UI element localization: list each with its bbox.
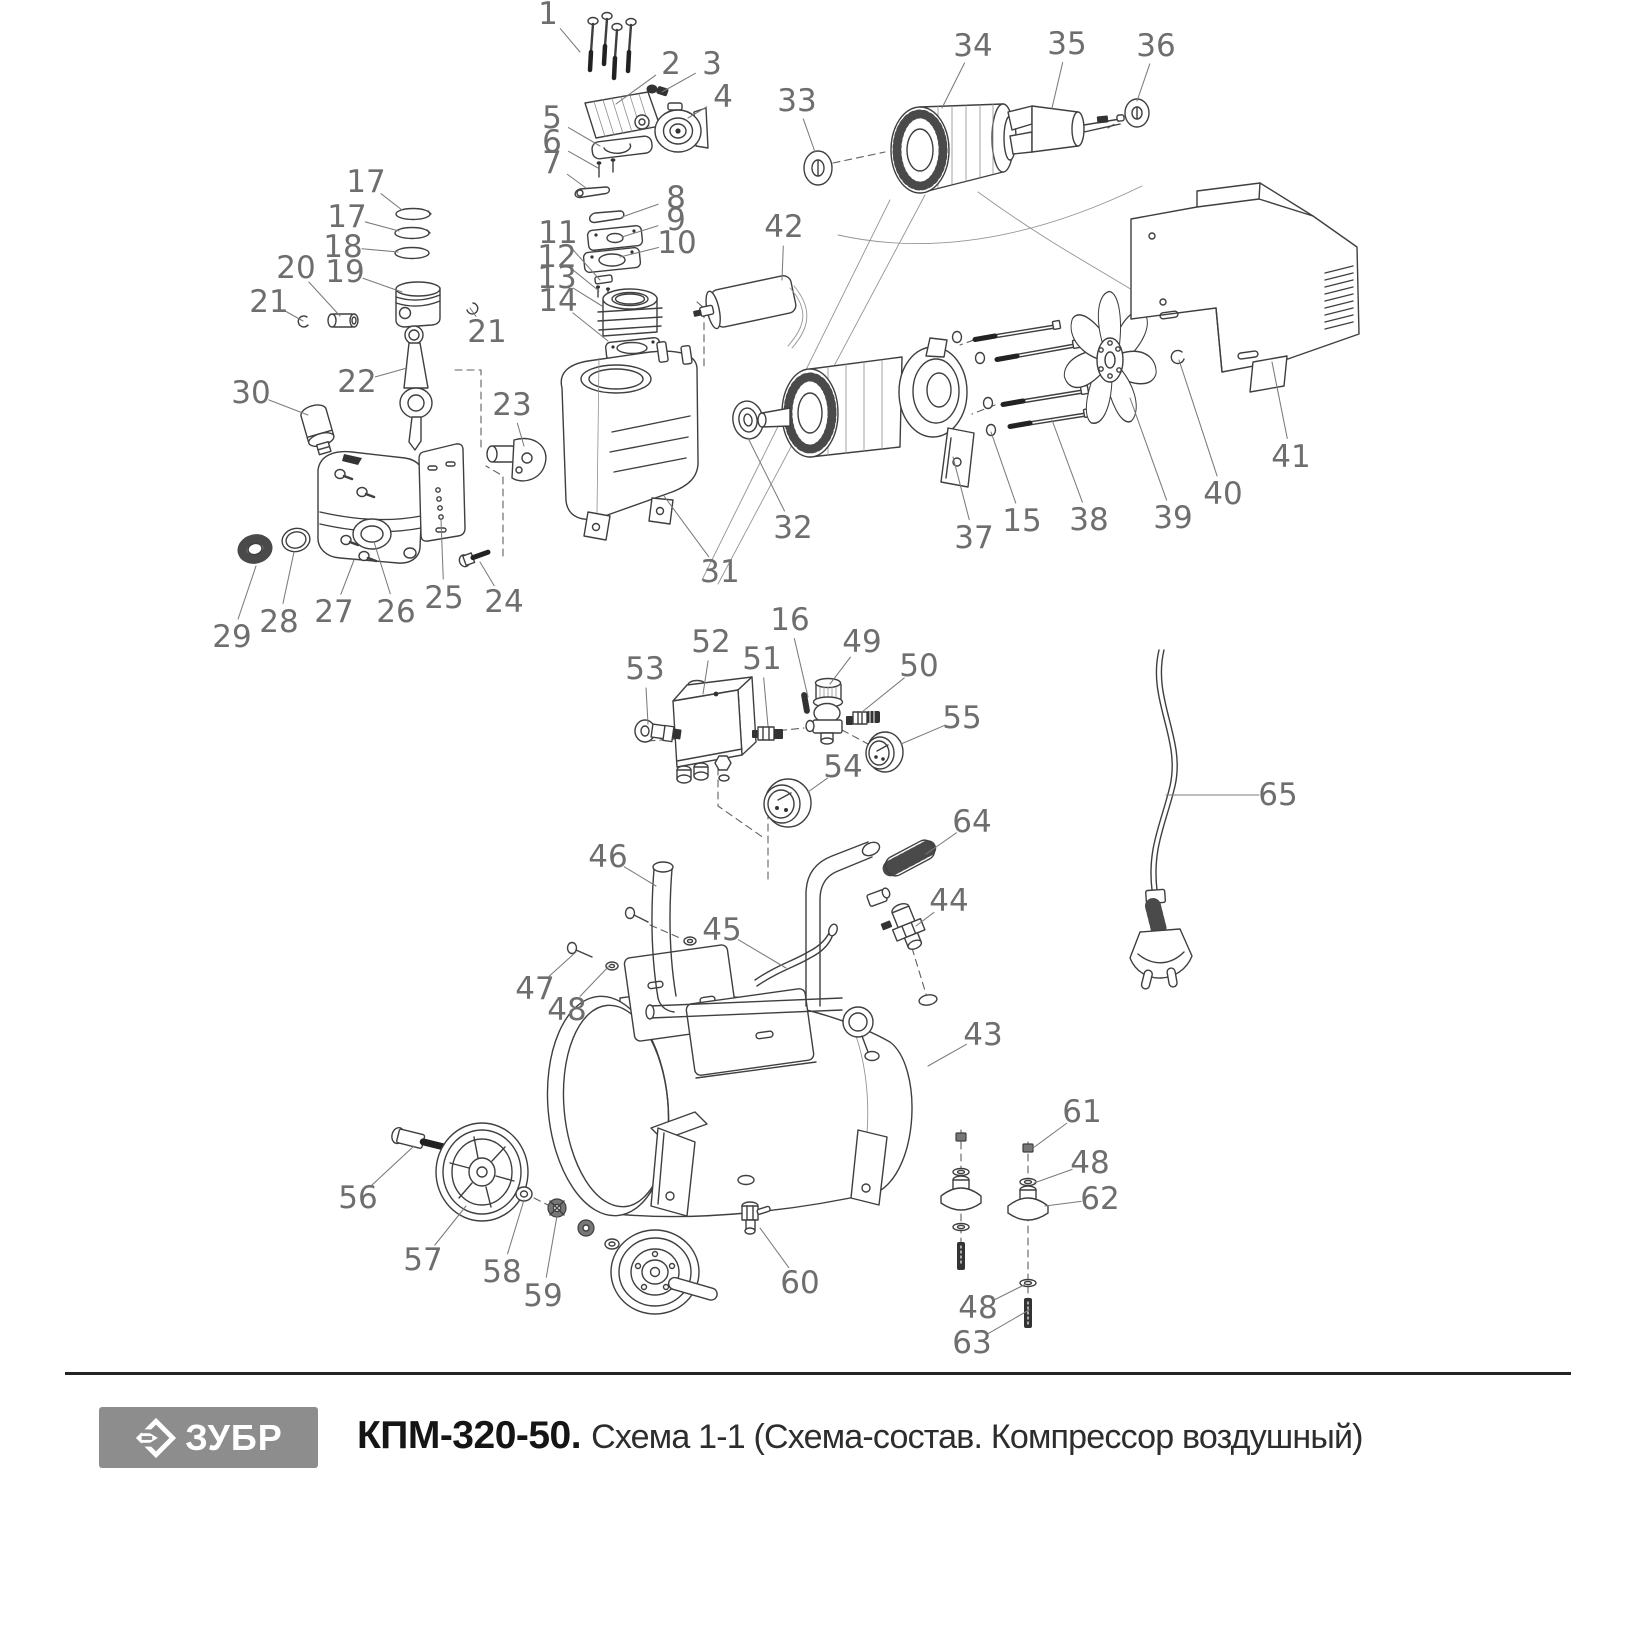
part-number-label: 19 — [325, 254, 364, 290]
part-number-label: 3 — [702, 46, 722, 82]
part-number-label: 23 — [492, 387, 531, 423]
leader-line — [1052, 62, 1063, 108]
part-number-label: 14 — [538, 283, 577, 319]
part-number-label: 63 — [952, 1325, 991, 1361]
part-number-label: 10 — [657, 225, 696, 261]
part-number-label: 45 — [702, 912, 741, 948]
bearing-front — [804, 151, 832, 185]
leader-line — [803, 119, 815, 152]
exploded-diagram: 1234567891011121314151617171819202121222… — [0, 0, 1636, 1636]
part-number-label: 31 — [700, 554, 739, 590]
leader-line — [363, 278, 402, 292]
part-number-label: 38 — [1069, 502, 1108, 538]
leader-line — [362, 249, 398, 252]
leader-line — [738, 940, 786, 968]
title-block: КПМ-320-50. Схема 1-1 (Схема-состав. Ком… — [357, 1414, 1363, 1458]
part-number-label: 27 — [314, 594, 353, 630]
part-number-label: 21 — [249, 284, 288, 320]
part-number-label: 20 — [276, 250, 315, 286]
leader-line — [341, 560, 354, 594]
cover-gasket — [419, 444, 465, 541]
crankcase — [561, 341, 698, 540]
part-number-label: 29 — [212, 619, 251, 655]
part-number-label: 62 — [1080, 1181, 1119, 1217]
piston-rings — [395, 209, 431, 259]
pressure-regulator — [801, 679, 843, 745]
leader-line — [435, 1206, 466, 1245]
leader-line — [942, 63, 965, 108]
leader-line — [646, 688, 648, 724]
valve-plate-stack — [575, 135, 653, 298]
rotor — [891, 104, 1016, 193]
outlet-fitting — [846, 711, 880, 725]
oil-cap — [235, 531, 275, 566]
zubr-logo: ЗУБР — [99, 1407, 318, 1468]
leader-line — [748, 438, 785, 511]
pressure-gauge-large — [764, 779, 811, 827]
part-number-label: 48 — [958, 1290, 997, 1326]
motor-end-bell — [899, 338, 974, 487]
page: 1234567891011121314151617171819202121222… — [0, 0, 1636, 1636]
leader-line — [1045, 1201, 1081, 1206]
pressure-gauge-small — [866, 732, 903, 772]
leader-line — [480, 562, 494, 586]
leader-line — [991, 432, 1016, 503]
part-number-label: 41 — [1271, 439, 1310, 475]
main-handle — [806, 840, 882, 1006]
part-number-label: 61 — [1062, 1094, 1101, 1130]
leader-line — [1052, 420, 1082, 502]
part-number-label: 51 — [742, 641, 781, 677]
part-number-label: 25 — [424, 580, 463, 616]
part-number-label: 37 — [954, 520, 993, 556]
piston — [396, 282, 440, 327]
check-valve — [876, 899, 930, 957]
part-number-label: 65 — [1258, 777, 1297, 813]
leader-line — [622, 204, 658, 217]
leader-line — [862, 678, 904, 712]
o-ring — [280, 525, 313, 554]
part-number-label: 54 — [823, 749, 862, 785]
model-number: КПМ-320-50. — [357, 1414, 581, 1458]
part-number-label: 35 — [1047, 26, 1086, 62]
part-number-label: 57 — [403, 1242, 442, 1278]
part-number-label: 22 — [337, 364, 376, 400]
leader-line — [1179, 360, 1217, 476]
rear-wheel-group — [611, 1230, 719, 1314]
part-number-label: 4 — [713, 79, 733, 115]
part-number-label: 1 — [538, 0, 558, 32]
part-number-label: 39 — [1153, 500, 1192, 536]
part-number-label: 30 — [231, 375, 270, 411]
part-number-label: 24 — [484, 584, 523, 620]
part-number-label: 33 — [777, 83, 816, 119]
leader-line — [372, 1146, 414, 1185]
leader-line — [560, 29, 580, 52]
discharge-pipe — [755, 887, 891, 986]
breather-plug — [299, 402, 337, 456]
part-number-label: 43 — [963, 1017, 1002, 1053]
armature — [1008, 106, 1124, 154]
fan-circlip — [1171, 350, 1184, 363]
part-number-label: 46 — [588, 839, 627, 875]
part-number-label: 16 — [770, 602, 809, 638]
part-number-label: 40 — [1203, 476, 1242, 512]
part-number-label: 17 — [346, 164, 385, 200]
leader-line — [269, 400, 308, 415]
schema-subtitle: Схема 1-1 (Схема-состав. Компрессор возд… — [591, 1418, 1363, 1457]
leader-line — [901, 725, 945, 744]
part-number-label: 48 — [1070, 1145, 1109, 1181]
part-number-label: 64 — [952, 804, 991, 840]
part-number-label: 36 — [1136, 28, 1175, 64]
leader-line — [664, 496, 709, 557]
leader-line — [546, 1216, 557, 1277]
leader-line — [567, 174, 586, 188]
part-number-label: 56 — [338, 1180, 377, 1216]
stator-motor — [758, 357, 902, 457]
pin-circlips — [298, 303, 477, 327]
part-number-label: 32 — [773, 510, 812, 546]
leader-line — [375, 368, 407, 377]
leader-line — [995, 1284, 1026, 1300]
pressure-switch — [673, 677, 756, 783]
leader-line — [928, 1044, 966, 1066]
zubr-diamond-arrow-icon — [134, 1416, 178, 1460]
leader-line — [238, 566, 256, 619]
part-number-label: 58 — [482, 1254, 521, 1290]
piston-pin — [328, 314, 358, 327]
part-number-label: 21 — [467, 314, 506, 350]
leader-line — [782, 246, 783, 280]
fan-shroud — [1131, 183, 1359, 392]
part-number-label: 49 — [842, 624, 881, 660]
leader-line — [1034, 1169, 1072, 1183]
part-number-label: 26 — [376, 594, 415, 630]
cylinder — [598, 289, 662, 336]
part-number-label: 59 — [523, 1278, 562, 1314]
part-number-label: 42 — [764, 209, 803, 245]
part-number-label: 52 — [691, 624, 730, 660]
leader-line — [283, 552, 294, 603]
leader-line — [794, 639, 808, 697]
part-number-label: 2 — [661, 46, 681, 82]
head-bolts — [588, 13, 636, 79]
footer-divider — [65, 1372, 1571, 1375]
part-number-label: 44 — [929, 883, 968, 919]
part-number-label: 55 — [942, 700, 981, 736]
part-number-label: 15 — [1002, 503, 1041, 539]
crankshaft-eccentric — [487, 439, 546, 481]
nipple-fitting — [752, 727, 783, 740]
spring — [882, 837, 937, 879]
part-number-label: 53 — [625, 651, 664, 687]
part-number-label: 28 — [259, 604, 298, 640]
drain-valve — [742, 1202, 771, 1234]
bearing-rear — [1125, 99, 1149, 127]
connecting-rod — [400, 326, 432, 450]
leader-line — [1130, 398, 1167, 500]
leader-line — [760, 1228, 789, 1268]
leader-line — [365, 222, 399, 231]
leader-line — [1137, 64, 1150, 101]
power-cord — [1130, 650, 1192, 990]
leader-line — [830, 657, 850, 684]
leader-line — [764, 678, 768, 726]
part-number-label: 7 — [542, 145, 562, 181]
part-number-label: 34 — [953, 28, 992, 64]
crankcase-cover — [318, 452, 423, 564]
logo-text: ЗУБР — [185, 1417, 282, 1459]
part-number-label: 50 — [899, 648, 938, 684]
part-number-label: 48 — [547, 992, 586, 1028]
cover-bolt — [458, 547, 490, 569]
part-number-label: 60 — [780, 1265, 819, 1301]
capacitor — [690, 274, 807, 348]
leader-line — [624, 867, 656, 886]
